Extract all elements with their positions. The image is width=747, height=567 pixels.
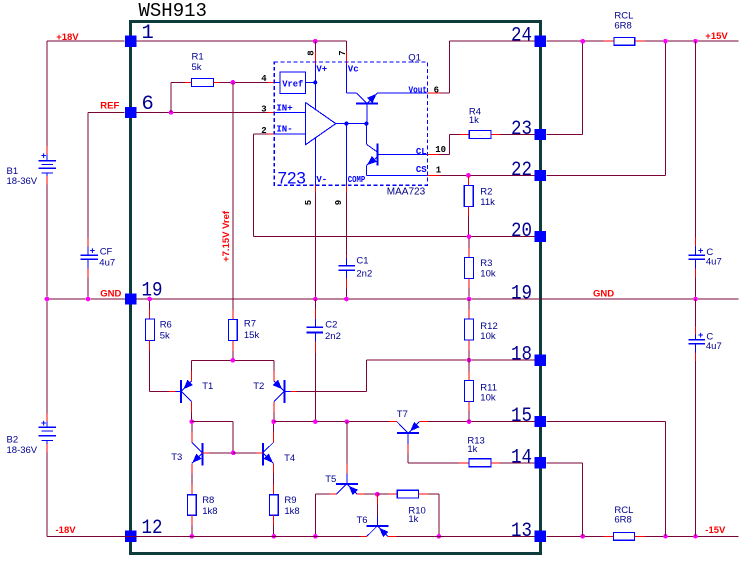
svg-text:R2: R2 xyxy=(480,186,492,197)
svg-text:18-36V: 18-36V xyxy=(7,176,38,187)
svg-text:Q1: Q1 xyxy=(408,53,421,64)
svg-text:-18V: -18V xyxy=(56,525,77,536)
svg-text:T4: T4 xyxy=(284,453,295,464)
svg-text:20: 20 xyxy=(511,220,532,243)
svg-text:5k: 5k xyxy=(192,62,202,73)
svg-text:+15V: +15V xyxy=(705,31,728,42)
svg-text:1k: 1k xyxy=(469,115,479,126)
svg-text:1k8: 1k8 xyxy=(202,506,217,517)
svg-text:R3: R3 xyxy=(480,258,492,269)
svg-text:22: 22 xyxy=(511,159,532,182)
svg-text:+: + xyxy=(41,151,46,161)
svg-text:+7.15V Vref: +7.15V Vref xyxy=(221,210,232,262)
svg-text:T5: T5 xyxy=(325,474,336,485)
svg-text:R9: R9 xyxy=(284,495,296,506)
svg-text:2: 2 xyxy=(261,126,266,136)
svg-text:WSH913: WSH913 xyxy=(139,0,207,22)
svg-text:T2: T2 xyxy=(253,381,264,392)
svg-text:Vref: Vref xyxy=(282,79,303,89)
svg-text:+: + xyxy=(90,246,95,256)
svg-text:6R8: 6R8 xyxy=(614,20,631,31)
svg-text:B2: B2 xyxy=(7,435,19,446)
svg-text:-15V: -15V xyxy=(705,525,726,536)
svg-text:CL: CL xyxy=(416,147,427,157)
svg-text:8: 8 xyxy=(306,50,316,55)
svg-text:COMP: COMP xyxy=(348,175,366,185)
svg-text:+18V: +18V xyxy=(56,32,79,43)
svg-text:7: 7 xyxy=(338,50,348,55)
svg-text:T6: T6 xyxy=(357,515,368,526)
svg-text:723: 723 xyxy=(278,169,306,188)
svg-text:6: 6 xyxy=(434,86,439,96)
svg-text:18-36V: 18-36V xyxy=(7,445,38,456)
svg-text:2n2: 2n2 xyxy=(356,269,372,280)
svg-text:4: 4 xyxy=(261,74,267,84)
svg-text:T1: T1 xyxy=(202,381,213,392)
svg-text:2n2: 2n2 xyxy=(325,331,341,342)
svg-text:R6: R6 xyxy=(160,319,172,330)
svg-text:1k: 1k xyxy=(408,514,418,525)
svg-text:14: 14 xyxy=(511,446,532,469)
svg-text:V-: V- xyxy=(316,175,327,185)
svg-text:Vout: Vout xyxy=(409,86,428,96)
svg-text:R1: R1 xyxy=(192,52,204,63)
svg-text:T7: T7 xyxy=(397,409,408,420)
svg-text:15: 15 xyxy=(511,405,532,428)
svg-text:CF: CF xyxy=(100,246,113,257)
svg-text:C2: C2 xyxy=(325,320,337,331)
svg-text:6R8: 6R8 xyxy=(614,514,631,525)
svg-text:4u7: 4u7 xyxy=(706,257,722,268)
svg-text:10k: 10k xyxy=(480,393,496,404)
svg-text:10k: 10k xyxy=(480,331,496,342)
svg-text:+: + xyxy=(698,330,703,340)
svg-text:V+: V+ xyxy=(316,65,327,75)
svg-text:GND: GND xyxy=(100,288,121,299)
svg-text:1k8: 1k8 xyxy=(284,506,299,517)
svg-text:5k: 5k xyxy=(160,330,170,341)
svg-text:4u7: 4u7 xyxy=(706,341,722,352)
svg-text:15k: 15k xyxy=(244,330,260,341)
svg-text:1k: 1k xyxy=(467,444,477,455)
svg-text:5: 5 xyxy=(304,200,314,205)
svg-text:MAA723: MAA723 xyxy=(387,186,426,197)
svg-text:REF: REF xyxy=(100,100,119,111)
svg-text:10: 10 xyxy=(435,145,446,155)
svg-text:1: 1 xyxy=(436,166,442,176)
svg-text:IN+: IN+ xyxy=(276,104,292,114)
svg-text:CS: CS xyxy=(416,165,427,175)
svg-text:+: + xyxy=(698,245,703,255)
svg-text:4u7: 4u7 xyxy=(99,257,115,268)
svg-text:IN-: IN- xyxy=(276,125,292,135)
svg-text:T3: T3 xyxy=(171,452,182,463)
svg-text:18: 18 xyxy=(511,344,532,367)
svg-text:9: 9 xyxy=(334,200,344,205)
svg-text:10k: 10k xyxy=(480,269,496,280)
svg-text:C1: C1 xyxy=(356,256,368,267)
svg-text:23: 23 xyxy=(511,118,532,141)
svg-text:+: + xyxy=(41,418,46,428)
svg-text:R7: R7 xyxy=(244,319,256,330)
svg-text:GND: GND xyxy=(593,289,614,300)
svg-text:19: 19 xyxy=(511,283,532,306)
svg-text:3: 3 xyxy=(261,104,266,114)
svg-text:24: 24 xyxy=(511,25,532,48)
svg-text:Vc: Vc xyxy=(348,65,359,75)
svg-text:R8: R8 xyxy=(202,495,214,506)
svg-text:11k: 11k xyxy=(480,197,495,208)
svg-text:13: 13 xyxy=(511,520,532,543)
